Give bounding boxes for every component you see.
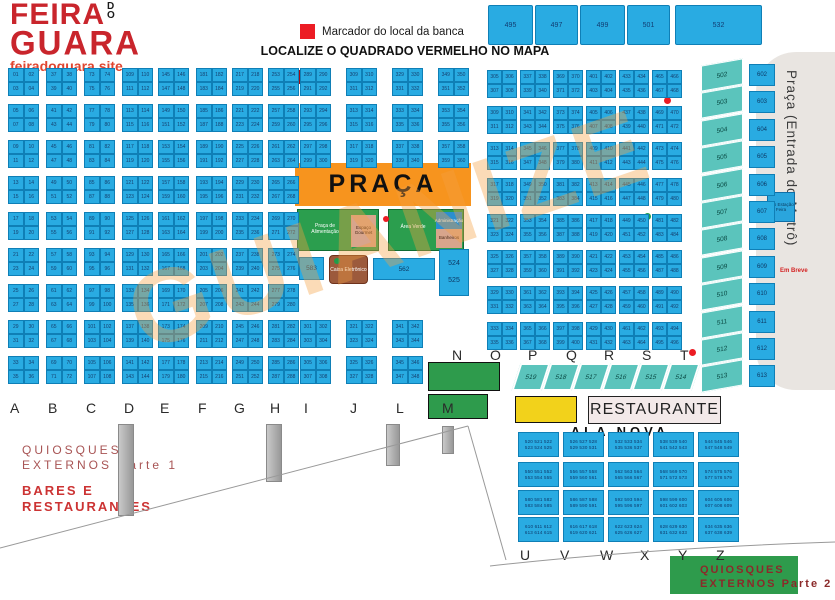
stall-cell: 459 <box>619 300 634 314</box>
stall-cell: 289 <box>300 68 316 82</box>
stall-cell: 305 <box>300 356 316 370</box>
stall-cell: 473 <box>652 142 667 156</box>
stall-cell: 121 <box>122 176 138 190</box>
stall-cell: 455 <box>619 264 634 278</box>
stall-cell: 354 <box>535 214 550 228</box>
stall-cell: 299 <box>300 154 316 168</box>
stall-cell: 273 <box>268 248 284 262</box>
stall-cell: 17 <box>8 212 24 226</box>
stall-cell: 241 <box>232 284 248 298</box>
stall-cell: 291 <box>300 82 316 96</box>
ala-nova-numbers-line: 529 530 531 <box>570 445 597 451</box>
pillar <box>118 424 134 516</box>
stall-cell: 265 <box>268 176 284 190</box>
stall-cell: 604 <box>749 119 775 141</box>
stall-cell: 379 <box>553 156 568 170</box>
stall-cell: 324 <box>362 334 378 348</box>
stall-block: 469470471472 <box>652 106 682 134</box>
stall-cell: 311 <box>346 82 362 96</box>
stall-cell: 120 <box>138 154 154 168</box>
stall-cell: 423 <box>586 264 601 278</box>
column-letter: Q <box>566 347 577 363</box>
map-headline: LOCALIZE O QUADRADO VERMELHO NO MAPA <box>255 44 555 58</box>
stall-cell: 114 <box>138 104 154 118</box>
stall-cell: 440 <box>634 120 649 134</box>
stall-cell: 94 <box>100 248 116 262</box>
feira-map-page: Praça (Entrada do Metrô) Em Breve Sub Es… <box>0 0 835 600</box>
stall-block: 401402403404 <box>586 70 616 98</box>
stall-cell: 483 <box>652 228 667 242</box>
stall-cell: 49 <box>46 176 62 190</box>
stall-block: 329330331332 <box>487 286 517 314</box>
stall-cell: 52 <box>62 190 78 204</box>
stall-cell: 99 <box>84 298 100 312</box>
stall-block: 361362363364 <box>520 286 550 314</box>
stall-cell: 232 <box>248 190 264 204</box>
ala-nova-stall-box: 634 635 636637 638 639 <box>698 517 739 542</box>
restaurante-box: RESTAURANTE <box>588 396 721 424</box>
stall-block: 409410411412 <box>586 142 616 170</box>
column-letter: E <box>160 400 169 416</box>
stall-cell: 192 <box>212 154 228 168</box>
stall-block: 81828384 <box>84 140 115 168</box>
stall-cell: 305 <box>487 70 502 84</box>
stall-cell: 393 <box>553 286 568 300</box>
stall-cell: 380 <box>568 156 583 170</box>
stall-cell: 274 <box>284 248 300 262</box>
stall-block: 45464748 <box>46 140 77 168</box>
column-letter: O <box>490 347 501 363</box>
stall-block: 325326327328 <box>346 356 377 384</box>
stall-cell: 494 <box>667 322 682 336</box>
stall-block: 437438439440 <box>619 106 649 134</box>
ala-nova-numbers-line: 583 584 585 <box>525 503 552 509</box>
em-breve-label: Em Breve <box>780 268 808 274</box>
stall-cell: 77 <box>84 104 100 118</box>
stall-cell: 66 <box>62 320 78 334</box>
stall-block: 979899100 <box>84 284 115 312</box>
feira-do-guara-logo: FEIRADO GUARA feiradoguara.site <box>10 2 220 64</box>
ala-nova-numbers-line: 631 632 633 <box>660 530 687 536</box>
stall-cell: 239 <box>232 262 248 276</box>
stall-cell: 330 <box>502 286 517 300</box>
stall-cell: 431 <box>586 336 601 350</box>
stall-block: 237238239240 <box>232 248 263 276</box>
stall-block: 205206207208 <box>196 284 227 312</box>
stall-block: 357358359360 <box>520 250 550 278</box>
stall-cell: 95 <box>84 262 100 276</box>
stall-cell: 278 <box>284 284 300 298</box>
stall-cell: 451 <box>619 228 634 242</box>
stall-cell: 72 <box>62 370 78 384</box>
stall-block: 169170171172 <box>158 284 189 312</box>
red-marker-icon <box>300 24 315 39</box>
stall-cell: 427 <box>586 300 601 314</box>
stall-cell: 388 <box>568 228 583 242</box>
stall-cell: 453 <box>619 250 634 264</box>
stall-block: 33343536 <box>8 356 39 384</box>
stall-block: 25262728 <box>8 284 39 312</box>
column-letter: G <box>234 400 245 416</box>
stall-cell: 250 <box>248 356 264 370</box>
stall-cell: 409 <box>586 142 601 156</box>
stall-block: 349350351352 <box>520 178 550 206</box>
stall-cell: 354 <box>454 104 470 118</box>
stall-cell: 461 <box>619 322 634 336</box>
ala-nova-stall-box: 538 539 540541 542 543 <box>653 432 694 457</box>
stall-cell: 153 <box>158 140 174 154</box>
stall-cell: 163 <box>158 226 174 240</box>
stall-cell: 05 <box>8 104 24 118</box>
stall-cell: 15 <box>8 190 24 204</box>
stall-cell: 411 <box>586 156 601 170</box>
stall-cell: 202 <box>212 248 228 262</box>
stall-cell: 377 <box>553 142 568 156</box>
stall-cell: 357 <box>520 250 535 264</box>
stall-block: 477478479480 <box>652 178 682 206</box>
stall-cell: 243 <box>232 298 248 312</box>
stall-cell: 03 <box>8 82 24 96</box>
stall-block: 173174175176 <box>158 320 189 348</box>
stall-cell: 154 <box>174 140 190 154</box>
stall-cell: 499 <box>580 5 625 45</box>
stall-cell: 328 <box>502 264 517 278</box>
stall-cell: 349 <box>438 68 454 82</box>
green-structure-1 <box>428 362 500 391</box>
ala-nova-numbers-line: 577 578 579 <box>705 475 732 481</box>
stall-block: 69707172 <box>46 356 77 384</box>
ala-nova-stall-box: 556 557 558559 560 561 <box>563 462 604 487</box>
stall-cell: 426 <box>601 286 616 300</box>
stall-cell: 169 <box>158 284 174 298</box>
stall-cell: 316 <box>362 118 378 132</box>
stall-cell: 362 <box>535 286 550 300</box>
stall-block: 113114115116 <box>122 104 153 132</box>
stall-cell: 490 <box>667 286 682 300</box>
stall-cell: 287 <box>268 370 284 384</box>
stall-block: 377378379380 <box>553 142 583 170</box>
stall-cell: 448 <box>634 192 649 206</box>
stall-cell: 303 <box>300 334 316 348</box>
stall-cell: 445 <box>619 178 634 192</box>
stall-cell: 04 <box>24 82 40 96</box>
ala-nova-numbers-line: 565 566 567 <box>615 475 642 481</box>
stall-block: 345346347348 <box>520 142 550 170</box>
stall-cell: 319 <box>346 154 362 168</box>
stall-cell: 233 <box>232 212 248 226</box>
stall-cell: 12 <box>24 154 40 168</box>
stall-cell: 446 <box>634 178 649 192</box>
stall-cell: 310 <box>502 106 517 120</box>
stall-block: 277278279280 <box>268 284 299 312</box>
stall-cell: 183 <box>196 82 212 96</box>
stall-cell: 135 <box>122 298 138 312</box>
stall-block: 369370371372 <box>553 70 583 98</box>
stall-cell: 187 <box>196 118 212 132</box>
stall-cell: 48 <box>62 154 78 168</box>
stall-cell: 613 <box>749 365 775 387</box>
stall-cell: 157 <box>158 176 174 190</box>
stall-cell: 84 <box>100 154 116 168</box>
logo-line2: GUARA <box>10 28 220 57</box>
ala-nova-numbers-line: 607 608 609 <box>705 503 732 509</box>
stall-cell: 345 <box>520 142 535 156</box>
stall-cell: 480 <box>667 192 682 206</box>
stall-cell: 167 <box>158 262 174 276</box>
stall-cell: 402 <box>601 70 616 84</box>
stall-cell: 122 <box>138 176 154 190</box>
stall-cell: 407 <box>586 120 601 134</box>
stall-cell: 309 <box>346 68 362 82</box>
stall-cell: 311 <box>487 120 502 134</box>
stall-cell: 42 <box>62 104 78 118</box>
stall-cell: 262 <box>284 140 300 154</box>
stall-block: 65666768 <box>46 320 77 348</box>
stall-block: 89909192 <box>84 212 115 240</box>
stall-block: 349350351352 <box>438 68 469 96</box>
stall-cell: 443 <box>619 156 634 170</box>
stall-cell: 60 <box>62 262 78 276</box>
stall-block: 417418419420 <box>586 214 616 242</box>
column-letter: J <box>350 400 357 416</box>
stall-cell: 429 <box>586 322 601 336</box>
stall-cell: 11 <box>8 154 24 168</box>
stall-cell: 329 <box>392 68 408 82</box>
stall-block: 321322323324 <box>346 320 377 348</box>
stall-cell: 472 <box>667 120 682 134</box>
stall-cell: 493 <box>652 322 667 336</box>
stall-cell: 325 <box>346 356 362 370</box>
stall-block: 305306307308 <box>487 70 517 98</box>
stall-block: 165166167168 <box>158 248 189 276</box>
stall-cell: 164 <box>174 226 190 240</box>
stall-cell: 01 <box>8 68 24 82</box>
stall-cell: 319 <box>487 192 502 206</box>
ala-nova-stall-box: 568 569 570571 572 573 <box>653 462 694 487</box>
stall-cell: 416 <box>601 192 616 206</box>
stall-block: 105106107108 <box>84 356 115 384</box>
stall-cell: 102 <box>100 320 116 334</box>
stall-cell: 143 <box>122 370 138 384</box>
stall-cell: 405 <box>586 106 601 120</box>
ala-nova-numbers-line: 589 590 591 <box>570 503 597 509</box>
stall-cell: 347 <box>520 156 535 170</box>
column-letter: Z <box>716 547 725 563</box>
stall-cell: 279 <box>268 298 284 312</box>
stall-cell: 50 <box>62 176 78 190</box>
stall-cell: 119 <box>122 154 138 168</box>
stall-cell: 349 <box>520 178 535 192</box>
stall-block: 345346347348 <box>392 356 423 384</box>
praca-block: PRAÇA <box>295 163 471 206</box>
column-letter: X <box>640 547 649 563</box>
stall-cell: 110 <box>138 68 154 82</box>
stall-cell: 68 <box>62 334 78 348</box>
stall-cell: 332 <box>502 300 517 314</box>
stall-cell: 441 <box>619 142 634 156</box>
column-letter: D <box>124 400 134 416</box>
stall-cell: 339 <box>392 154 408 168</box>
stall-cell: 231 <box>232 190 248 204</box>
stall-block: 109110111112 <box>122 68 153 96</box>
stall-cell: 248 <box>248 334 264 348</box>
ala-nova-stall-box: 550 551 552553 554 555 <box>518 462 559 487</box>
stall-cell: 260 <box>284 118 300 132</box>
stall-block: 161162163164 <box>158 212 189 240</box>
stall-cell: 403 <box>586 84 601 98</box>
marker-legend-label: Marcador do local da banca <box>322 26 464 38</box>
stall-cell: 342 <box>535 106 550 120</box>
stall-cell: 410 <box>601 142 616 156</box>
stall-block: 17181920 <box>8 212 39 240</box>
ala-nova-stall-box: 622 623 624625 626 627 <box>608 517 649 542</box>
stall-block: 337338339340 <box>520 70 550 98</box>
stall-block: 337338339340 <box>392 140 423 168</box>
ala-nova-numbers-line: 553 554 555 <box>525 475 552 481</box>
stall-block: 01020304 <box>8 68 39 96</box>
stall-cell: 460 <box>634 300 649 314</box>
stall-cell: 475 <box>652 156 667 170</box>
stall-cell: 55 <box>46 226 62 240</box>
ala-nova-stall-box: 574 575 576577 578 579 <box>698 462 739 487</box>
stall-block: 321322323324 <box>487 214 517 242</box>
stall-block: 133134135136 <box>122 284 153 312</box>
stall-cell-562: 562 <box>373 258 435 280</box>
stall-cell: 228 <box>248 154 264 168</box>
stall-cell: 323 <box>487 228 502 242</box>
stall-cell: 207 <box>196 298 212 312</box>
stall-cell: 193 <box>196 176 212 190</box>
stall-cell: 252 <box>248 370 264 384</box>
stall-cell: 603 <box>749 91 775 113</box>
stall-block: 229230231232 <box>232 176 263 204</box>
stall-block: 309310311312 <box>487 106 517 134</box>
stall-cell: 345 <box>392 356 408 370</box>
stall-cell: 484 <box>667 228 682 242</box>
stall-cell: 147 <box>158 82 174 96</box>
stall-cell: 355 <box>520 228 535 242</box>
stall-cell: 81 <box>84 140 100 154</box>
stall-cell: 151 <box>158 118 174 132</box>
stall-block: 181182183184 <box>196 68 227 96</box>
stall-cell: 39 <box>46 82 62 96</box>
stall-cell: 497 <box>535 5 578 45</box>
stall-cell: 237 <box>232 248 248 262</box>
stall-cell: 64 <box>62 298 78 312</box>
stall-cell: 23 <box>8 262 24 276</box>
stall-cell: 343 <box>392 334 408 348</box>
stall-cell: 131 <box>122 262 138 276</box>
stall-cell: 76 <box>100 82 116 96</box>
ala-nova-stall-box: 586 587 588589 590 591 <box>563 490 604 515</box>
stall-block: 341342343344 <box>392 320 423 348</box>
stall-cell: 495 <box>652 336 667 350</box>
stall-block: 373374375376 <box>553 106 583 134</box>
stall-cell: 373 <box>553 106 568 120</box>
stall-cell: 456 <box>634 264 649 278</box>
stall-cell: 361 <box>520 286 535 300</box>
column-letter: A <box>10 400 19 416</box>
stall-cell: 369 <box>553 70 568 84</box>
stall-cell: 364 <box>535 300 550 314</box>
stall-cell: 208 <box>212 298 228 312</box>
stall-cell: 02 <box>24 68 40 82</box>
stall-cell: 358 <box>454 140 470 154</box>
stall-cell: 09 <box>8 140 24 154</box>
stall-block: 149150151152 <box>158 104 189 132</box>
quiosques-parte2-line1: QUIOSQUES <box>700 563 832 577</box>
stall-block: 193194195196 <box>196 176 227 204</box>
stall-block: 393394395396 <box>553 286 583 314</box>
stall-cell: 363 <box>520 300 535 314</box>
stall-cell: 168 <box>174 262 190 276</box>
stall-block: 309310311312 <box>346 68 377 96</box>
stall-block: 381382383384 <box>553 178 583 206</box>
stall-cell: 280 <box>284 298 300 312</box>
stall-cell: 350 <box>454 68 470 82</box>
green-structure-2 <box>428 394 488 419</box>
stall-cell: 336 <box>408 118 424 132</box>
ala-nova-numbers-line: 601 602 603 <box>660 503 687 509</box>
stall-cell: 356 <box>454 118 470 132</box>
stall-cell: 351 <box>438 82 454 96</box>
stall-cell: 69 <box>46 356 62 370</box>
stall-cell: 612 <box>749 338 775 360</box>
stall-block: 313314315316 <box>346 104 377 132</box>
stall-cell: 90 <box>100 212 116 226</box>
stall-block: 301302303304 <box>300 320 331 348</box>
stall-cell: 321 <box>487 214 502 228</box>
stall-cell: 418 <box>601 214 616 228</box>
green-area-left: Praça de Alimentação Espaço Gourmet <box>297 209 379 251</box>
green-right-inset-bottom: Banheiros <box>436 229 462 248</box>
stall-cell: 290 <box>316 68 332 82</box>
stall-block: 57585960 <box>46 248 77 276</box>
stall-block: 365366367368 <box>520 322 550 350</box>
stall-cell: 206 <box>212 284 228 298</box>
stall-cell: 257 <box>268 104 284 118</box>
stall-cell: 469 <box>652 106 667 120</box>
stall-cell: 306 <box>502 70 517 84</box>
stall-cell: 282 <box>284 320 300 334</box>
stall-cell: 58 <box>62 248 78 262</box>
stall-cell: 18 <box>24 212 40 226</box>
stall-cell: 408 <box>601 120 616 134</box>
stall-cell: 62 <box>62 284 78 298</box>
stall-cell: 449 <box>619 214 634 228</box>
stall-cell: 286 <box>284 356 300 370</box>
stall-cell: 166 <box>174 248 190 262</box>
stall-block: 489490491492 <box>652 286 682 314</box>
stall-cell: 308 <box>502 84 517 98</box>
stall-cell: 365 <box>520 322 535 336</box>
stall-block: 297298299300 <box>300 140 331 168</box>
stall-cell: 226 <box>248 140 264 154</box>
stall-cell: 29 <box>8 320 24 334</box>
stall-block: 461462463464 <box>619 322 649 350</box>
stall-cell: 174 <box>174 320 190 334</box>
stall-block: 117118119120 <box>122 140 153 168</box>
stall-cell: 470 <box>667 106 682 120</box>
stall-cell: 513 <box>701 360 743 393</box>
stall-cell: 309 <box>487 106 502 120</box>
stall-block: 429430431432 <box>586 322 616 350</box>
stall-cell: 53 <box>46 212 62 226</box>
stall-cell: 242 <box>248 284 264 298</box>
stall-block: 353354355356 <box>438 104 469 132</box>
stall-cell: 347 <box>392 370 408 384</box>
stall-cell: 436 <box>634 84 649 98</box>
